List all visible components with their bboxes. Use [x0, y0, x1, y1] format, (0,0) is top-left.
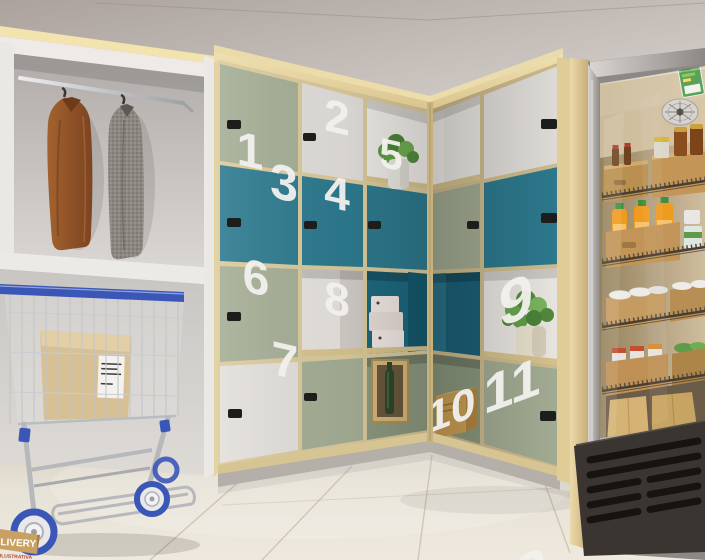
handle-5 — [368, 221, 381, 229]
frame-clip-right — [159, 419, 171, 432]
locker-number-9: 9 — [499, 259, 533, 341]
tweed-coat — [108, 95, 144, 259]
locker-number-7: 7 — [272, 331, 299, 390]
locker-number-4: 4 — [324, 165, 350, 222]
locker-number-8: 8 — [324, 271, 350, 328]
alcove-left-pillar — [0, 42, 14, 258]
handle-8 — [304, 393, 317, 401]
coat-body — [108, 105, 144, 259]
locker-number-3: 3 — [270, 151, 298, 214]
end-trim-wood — [557, 57, 572, 484]
cart-wheel-right — [137, 484, 167, 514]
locker-wall-left: 1 2 3 4 5 6 7 8 — [204, 45, 430, 487]
corner-trim — [427, 102, 433, 443]
leather-jacket — [47, 88, 92, 250]
frame-clip-left — [18, 428, 30, 443]
handle-2 — [303, 133, 316, 141]
handle-9 — [541, 119, 557, 129]
cabinet-edge-wood — [214, 58, 218, 477]
locker-number-1: 1 — [237, 121, 264, 180]
fridge — [570, 48, 705, 560]
locker-number-2: 2 — [324, 89, 350, 146]
locker-number-6: 6 — [243, 248, 270, 307]
handle-3 — [227, 218, 241, 227]
locker-number-5: 5 — [379, 129, 402, 182]
coat-alcove — [0, 26, 215, 291]
handle-12 — [540, 411, 556, 421]
handle-6 — [227, 312, 241, 321]
handle-4 — [304, 221, 317, 229]
fridge-vent-base — [574, 421, 705, 556]
cart-basket — [0, 284, 184, 424]
handle-7 — [228, 409, 242, 418]
handle-11 — [541, 213, 557, 223]
delivery-room-render: 1 2 3 4 5 6 7 8 — [0, 0, 705, 560]
locker-floor-shadow — [400, 486, 590, 514]
parcel-label — [97, 356, 124, 399]
badge-label: DELIVERY — [0, 536, 37, 550]
handle-10 — [467, 221, 479, 229]
